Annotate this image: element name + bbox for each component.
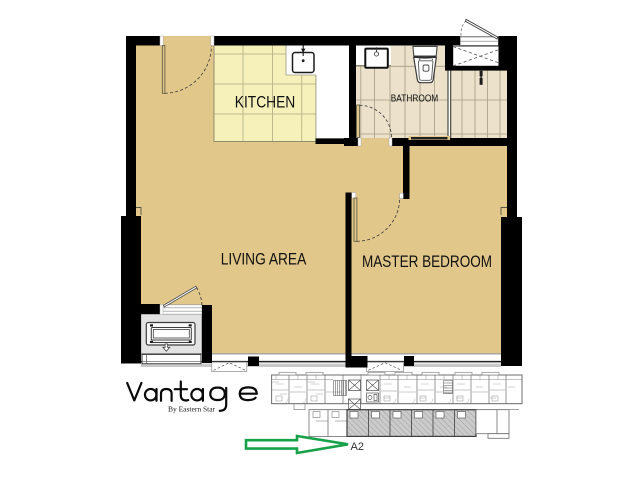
svg-text:By Eastern Star: By Eastern Star — [168, 405, 216, 414]
svg-text:BATHROOM: BATHROOM — [391, 93, 439, 104]
svg-text:KITCHEN: KITCHEN — [235, 94, 296, 112]
svg-text:A2: A2 — [351, 441, 364, 453]
svg-text:LIVING AREA: LIVING AREA — [221, 251, 307, 269]
svg-text:MASTER BEDROOM: MASTER BEDROOM — [362, 253, 492, 271]
